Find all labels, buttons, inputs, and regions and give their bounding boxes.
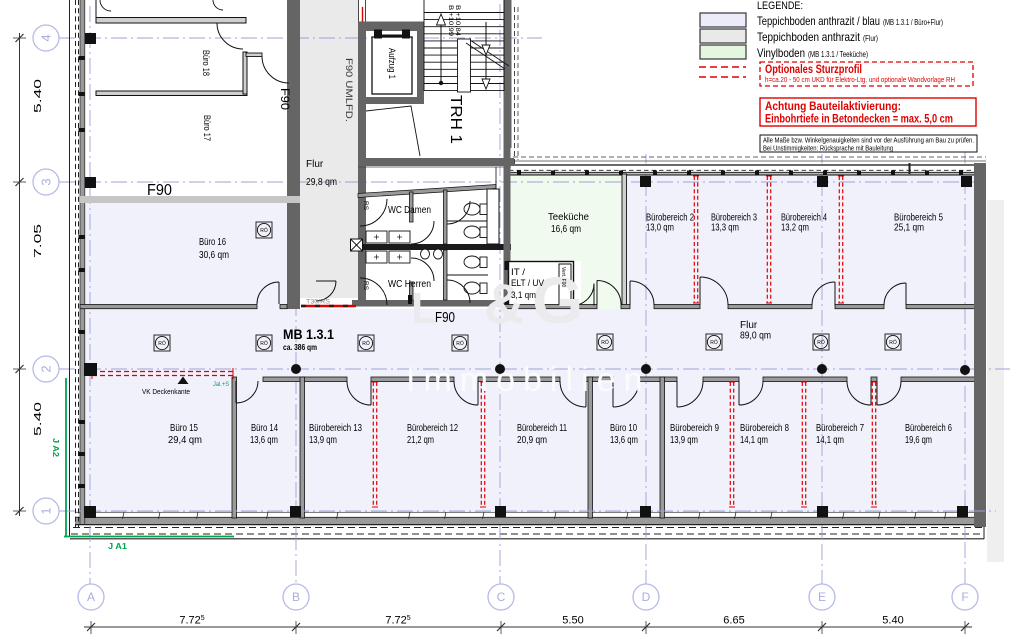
svg-text:21,2 qm: 21,2 qm <box>407 434 434 446</box>
svg-text:29,4 qm: 29,4 qm <box>168 434 202 446</box>
svg-text:Büro 10: Büro 10 <box>610 422 637 434</box>
svg-text:Bürobereich 8: Bürobereich 8 <box>740 422 789 434</box>
svg-text:WC Damen: WC Damen <box>388 205 431 216</box>
svg-text:16,6 qm: 16,6 qm <box>551 223 581 235</box>
svg-text:Vert. F90: Vert. F90 <box>560 267 566 288</box>
svg-text:14,1 qm: 14,1 qm <box>740 434 768 446</box>
svg-text:WC Herren: WC Herren <box>388 279 431 290</box>
svg-text:Büro 17: Büro 17 <box>202 115 212 141</box>
svg-text:RÖ: RÖ <box>456 340 464 347</box>
svg-text:E: E <box>818 590 826 604</box>
svg-text:RS: RS <box>362 281 369 291</box>
svg-text:1: 1 <box>39 507 54 514</box>
svg-text:Teppichboden anthrazit: Teppichboden anthrazit <box>757 30 861 44</box>
svg-text:B +10,99: B +10,99 <box>447 5 454 36</box>
svg-text:RS: RS <box>362 201 369 211</box>
svg-text:Büro 16: Büro 16 <box>199 236 226 248</box>
svg-text:RÖ: RÖ <box>158 340 166 347</box>
svg-text:h=ca.20 - 50 cm UKD für Elektr: h=ca.20 - 50 cm UKD für Elektro-Ltg. und… <box>765 75 955 84</box>
svg-text:Bürobereich 13: Bürobereich 13 <box>309 422 362 434</box>
svg-text:Flur: Flur <box>740 320 758 331</box>
svg-text:Einbohrtiefe in Betondecken =: Einbohrtiefe in Betondecken = max. 5,0 c… <box>765 112 953 126</box>
svg-text:3,1 qm: 3,1 qm <box>511 290 536 301</box>
svg-text:Büro 18: Büro 18 <box>201 50 211 76</box>
svg-text:RÖ: RÖ <box>817 339 825 346</box>
svg-text:20,9 qm: 20,9 qm <box>517 434 547 446</box>
svg-text:Aufzug 1: Aufzug 1 <box>387 48 397 79</box>
svg-text:6.65: 6.65 <box>723 615 744 627</box>
svg-text:(MB 1.3.1 / Büro+Flur): (MB 1.3.1 / Büro+Flur) <box>883 18 943 27</box>
svg-text:(Flur): (Flur) <box>863 34 878 43</box>
svg-text:F: F <box>961 590 968 604</box>
svg-text:Jal.+S: Jal.+S <box>213 382 229 388</box>
svg-text:ELT / UV: ELT / UV <box>511 278 545 289</box>
svg-text:RÖ: RÖ <box>362 340 370 347</box>
svg-text:Bürobereich 12: Bürobereich 12 <box>407 422 458 434</box>
svg-text:7.05: 7.05 <box>33 223 44 258</box>
svg-text:Immobilien: Immobilien <box>406 361 650 399</box>
svg-text:4: 4 <box>39 34 54 41</box>
svg-text:Teeküche: Teeküche <box>548 211 589 223</box>
svg-text:5.40: 5.40 <box>33 78 44 113</box>
svg-text:25,1 qm: 25,1 qm <box>894 222 924 234</box>
svg-text:30,6 qm: 30,6 qm <box>199 249 229 261</box>
svg-text:Bürobereich 11: Bürobereich 11 <box>517 422 567 434</box>
svg-text:F90: F90 <box>147 182 172 199</box>
svg-text:J A2: J A2 <box>51 438 60 458</box>
svg-text:LEGENDE:: LEGENDE: <box>757 0 803 12</box>
svg-text:J A1: J A1 <box>108 542 128 551</box>
svg-text:Bürobereich 6: Bürobereich 6 <box>905 422 952 434</box>
svg-text:RÖ: RÖ <box>889 339 897 346</box>
svg-text:29,8 qm: 29,8 qm <box>306 177 337 188</box>
svg-text:Bürobereich 9: Bürobereich 9 <box>670 422 719 434</box>
svg-text:MB 1.3.1: MB 1.3.1 <box>283 326 334 342</box>
svg-text:Vinylboden: Vinylboden <box>757 46 805 60</box>
svg-text:D: D <box>642 590 651 604</box>
svg-text:19,6 qm: 19,6 qm <box>905 434 932 446</box>
svg-text:Bei Unstimmigkeiten: Rücksprac: Bei Unstimmigkeiten: Rücksprache mit Bau… <box>763 144 893 153</box>
svg-text:B +10,84: B +10,84 <box>454 5 461 36</box>
svg-text:13,6 qm: 13,6 qm <box>250 434 278 446</box>
svg-text:5.50: 5.50 <box>562 615 583 627</box>
svg-text:Teppichboden anthrazit / blau: Teppichboden anthrazit / blau <box>757 14 880 28</box>
svg-text:13,6 qm: 13,6 qm <box>610 434 638 446</box>
svg-text:F90: F90 <box>435 309 455 326</box>
svg-text:RÖ: RÖ <box>260 340 268 347</box>
svg-text:Büro 15: Büro 15 <box>170 422 198 434</box>
svg-text:13,0 qm: 13,0 qm <box>646 222 674 234</box>
svg-text:T30/RS: T30/RS <box>306 299 331 306</box>
svg-text:5.40: 5.40 <box>33 401 44 436</box>
svg-text:RÖ: RÖ <box>260 227 268 234</box>
svg-text:89,0 qm: 89,0 qm <box>740 331 771 342</box>
svg-text:C: C <box>497 590 506 604</box>
svg-text:Bürobereich 7: Bürobereich 7 <box>816 422 864 434</box>
svg-text:Flur: Flur <box>306 159 324 170</box>
svg-text:ca. 386 qm: ca. 386 qm <box>283 342 317 352</box>
svg-text:F90: F90 <box>278 88 292 110</box>
svg-text:5.40: 5.40 <box>882 615 903 627</box>
svg-text:(MB 1.3.1 / Teeküche): (MB 1.3.1 / Teeküche) <box>808 50 868 59</box>
svg-text:13,9 qm: 13,9 qm <box>670 434 698 446</box>
svg-text:A: A <box>87 590 95 604</box>
svg-text:2: 2 <box>39 365 54 372</box>
svg-text:F90 UMLFD.: F90 UMLFD. <box>343 58 354 122</box>
svg-text:13,2 qm: 13,2 qm <box>781 222 809 234</box>
svg-text:RÖ: RÖ <box>710 339 718 346</box>
svg-text:B: B <box>292 590 300 604</box>
svg-text:RÖ: RÖ <box>601 339 609 346</box>
svg-text:Büro 14: Büro 14 <box>251 422 278 434</box>
svg-text:3: 3 <box>39 178 54 185</box>
svg-text:IT /: IT / <box>511 267 525 278</box>
svg-text:VK Deckenkante: VK Deckenkante <box>142 387 190 396</box>
svg-text:13,9 qm: 13,9 qm <box>309 434 337 446</box>
svg-text:14,1 qm: 14,1 qm <box>816 434 844 446</box>
svg-text:13,3 qm: 13,3 qm <box>711 222 739 234</box>
svg-text:TRH 1: TRH 1 <box>447 95 464 144</box>
